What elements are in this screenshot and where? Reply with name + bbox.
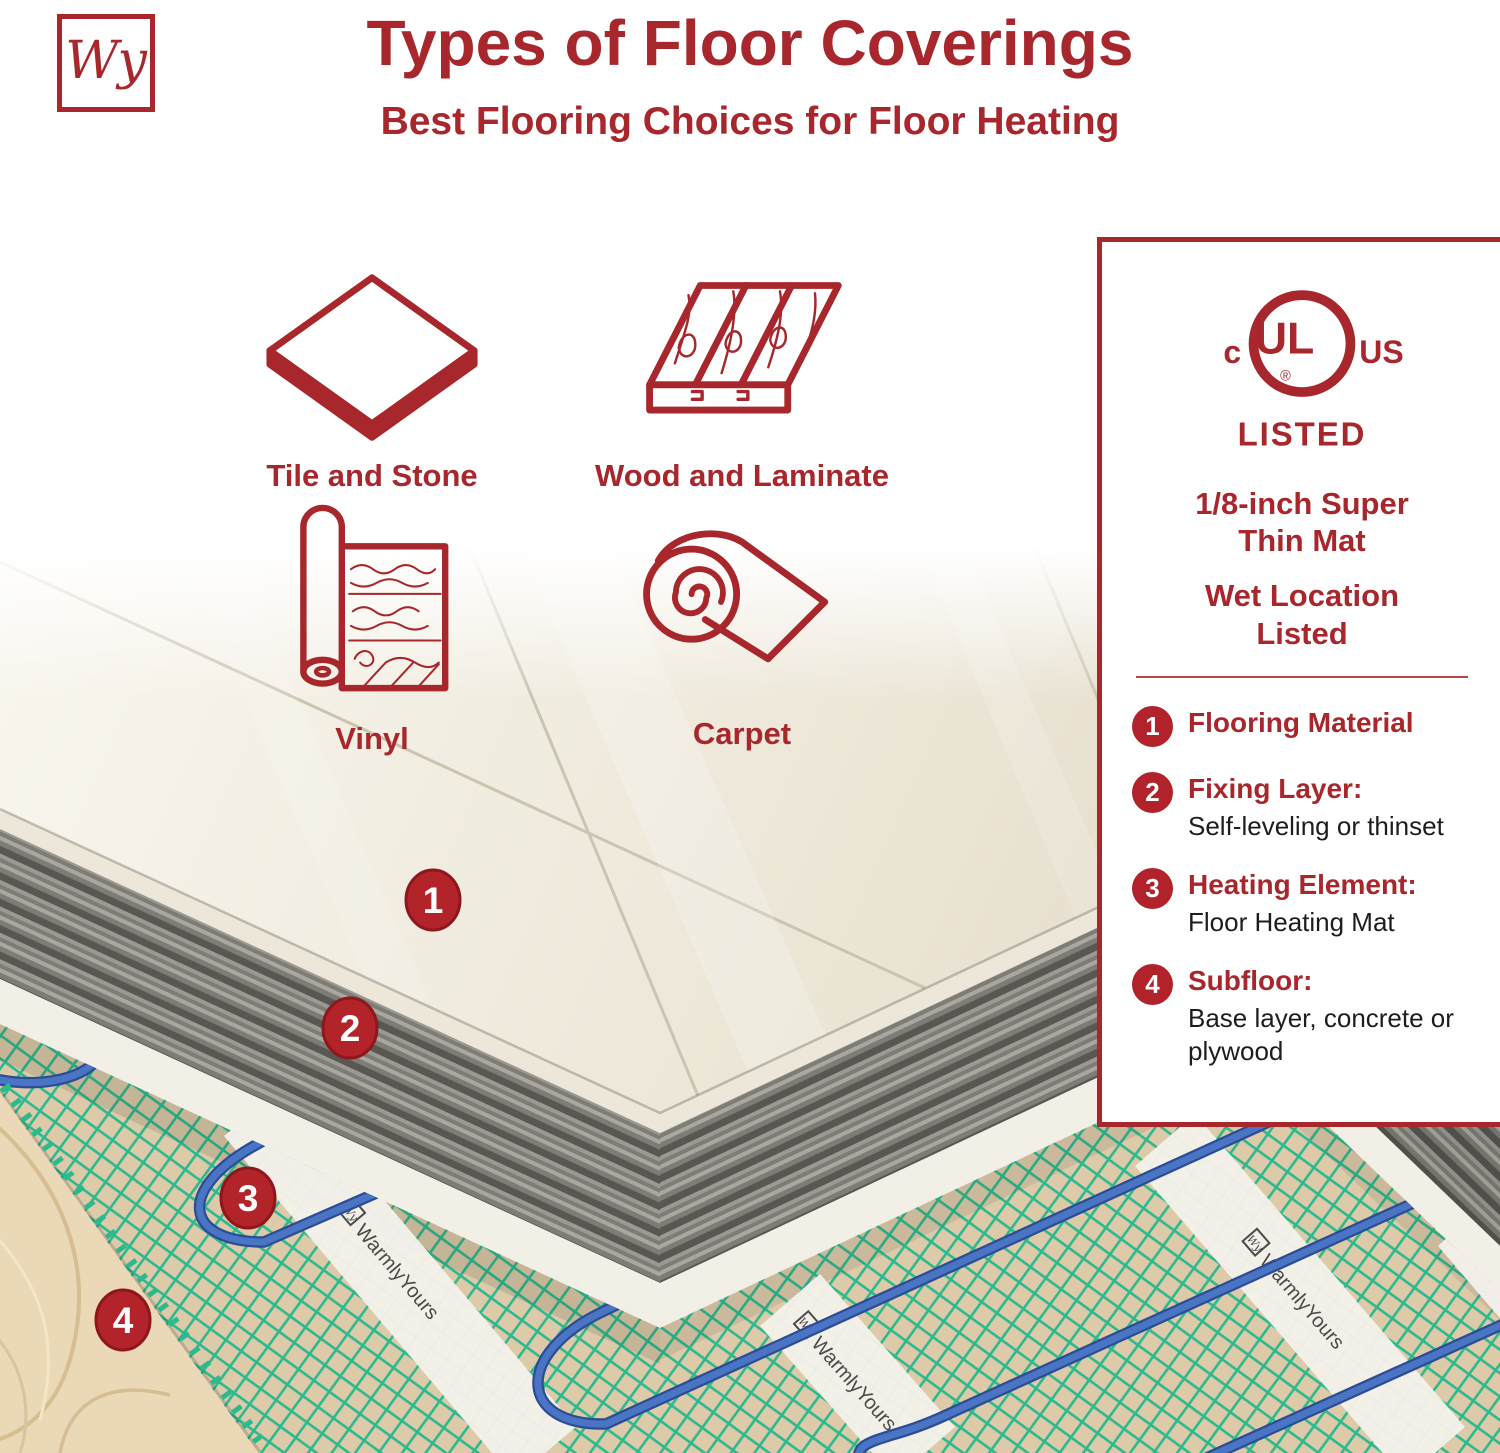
marker-1: 1 bbox=[406, 870, 460, 930]
vinyl-icon bbox=[272, 496, 472, 711]
legend-item-fixing-layer: 2 Fixing Layer: Self-leveling or thinset bbox=[1132, 770, 1472, 843]
flooring-type-vinyl: Vinyl bbox=[212, 496, 532, 757]
legend-label: Heating Element: bbox=[1188, 866, 1472, 904]
product-info-panel: UL c US ® LISTED 1/8-inch Super Thin Mat… bbox=[1097, 237, 1500, 1127]
feature-thin-mat: 1/8-inch Super Thin Mat bbox=[1166, 485, 1438, 559]
legend-badge: 2 bbox=[1132, 772, 1173, 813]
legend-label: Fixing Layer: bbox=[1188, 770, 1472, 808]
marker-2: 2 bbox=[323, 998, 377, 1058]
flooring-type-label: Vinyl bbox=[212, 721, 532, 757]
legend-desc: Self-leveling or thinset bbox=[1188, 810, 1472, 843]
legend-item-heating-element: 3 Heating Element: Floor Heating Mat bbox=[1132, 866, 1472, 939]
legend-item-flooring-material: 1 Flooring Material bbox=[1132, 704, 1472, 747]
ul-letter-u: UL bbox=[1255, 314, 1314, 363]
wood-icon bbox=[625, 268, 860, 448]
feature-wet-location: Wet Location Listed bbox=[1182, 577, 1422, 651]
legend-desc: Floor Heating Mat bbox=[1188, 906, 1472, 939]
tile-icon bbox=[255, 268, 490, 448]
ul-listed-text: LISTED bbox=[1238, 415, 1367, 452]
marker-4: 4 bbox=[96, 1290, 150, 1350]
flooring-type-label: Tile and Stone bbox=[212, 458, 532, 494]
panel-divider bbox=[1136, 676, 1468, 678]
legend-desc: Base layer, concrete or plywood bbox=[1188, 1002, 1472, 1069]
flooring-type-wood-and-laminate: Wood and Laminate bbox=[552, 268, 932, 494]
flooring-type-label: Carpet bbox=[552, 716, 932, 752]
ul-c: c bbox=[1223, 334, 1241, 370]
ul-us: US bbox=[1359, 334, 1403, 370]
ul-registered: ® bbox=[1280, 368, 1291, 384]
legend-label: Subfloor: bbox=[1188, 962, 1472, 1000]
page-title: Types of Floor Coverings bbox=[0, 6, 1500, 80]
marker-3: 3 bbox=[221, 1168, 275, 1228]
svg-text:4: 4 bbox=[113, 1300, 134, 1341]
legend-badge: 3 bbox=[1132, 868, 1173, 909]
legend-item-subfloor: 4 Subfloor: Base layer, concrete or plyw… bbox=[1132, 962, 1472, 1068]
flooring-type-carpet: Carpet bbox=[552, 496, 932, 752]
layer-legend-list: 1 Flooring Material 2 Fixing Layer: Self… bbox=[1132, 704, 1472, 1068]
svg-text:2: 2 bbox=[340, 1008, 361, 1049]
legend-badge: 1 bbox=[1132, 706, 1173, 747]
legend-badge: 4 bbox=[1132, 964, 1173, 1005]
ul-listed-mark: UL c US ® LISTED bbox=[1132, 266, 1472, 465]
flooring-type-label: Wood and Laminate bbox=[552, 458, 932, 494]
carpet-icon bbox=[625, 496, 860, 706]
svg-text:1: 1 bbox=[423, 880, 444, 921]
page-subtitle: Best Flooring Choices for Floor Heating bbox=[0, 100, 1500, 144]
legend-label: Flooring Material bbox=[1188, 704, 1472, 742]
svg-text:3: 3 bbox=[238, 1178, 259, 1219]
infographic-canvas: Wy WarmlyYours Wy WarmlyYours Wy WarmlyY… bbox=[0, 0, 1500, 1453]
flooring-type-tile-and-stone: Tile and Stone bbox=[212, 268, 532, 494]
